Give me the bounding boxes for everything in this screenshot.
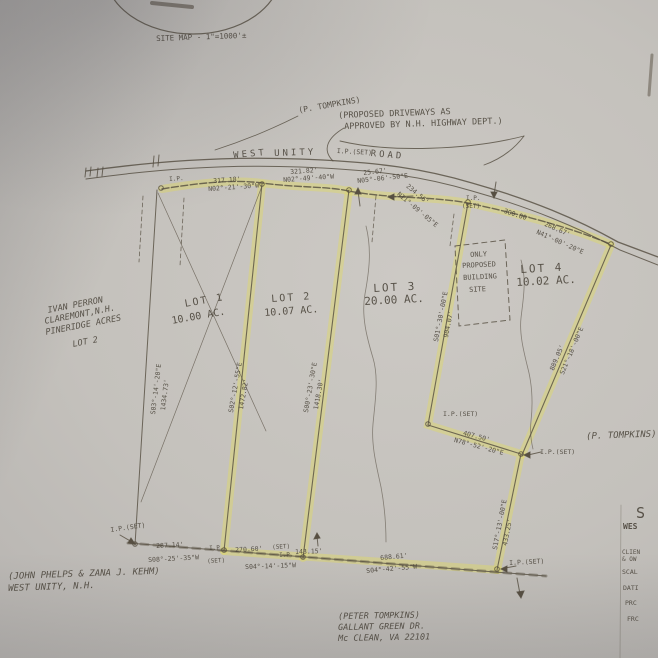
ip-marker-label: I.P. bbox=[279, 552, 294, 559]
ip-marker-label: (SET) bbox=[462, 204, 480, 210]
lot2-area: 10.07 AC. bbox=[264, 305, 319, 319]
ip-marker-label: I.P. bbox=[466, 196, 480, 202]
titleblock-dati: DATI bbox=[623, 585, 639, 592]
bottom-brg-3: S04°-42'-55"W bbox=[366, 564, 417, 575]
ip-set-label: I.P.(SET) bbox=[540, 449, 575, 456]
bottom-dim-2: 270.60' bbox=[235, 546, 263, 554]
titleblock-ow: & OW bbox=[622, 557, 636, 563]
bottom-dim-1: 287.14' bbox=[156, 542, 184, 550]
road-label-unity: UNITY bbox=[274, 149, 316, 159]
abutter-phelps-2: WEST UNITY, N.H. bbox=[8, 582, 95, 594]
road-ip-set: I.P.(SET) bbox=[337, 148, 373, 156]
building-site-line4: SITE bbox=[469, 286, 486, 294]
owner-tompkins-3: Mc CLEAN, VA 22101 bbox=[338, 633, 430, 643]
ip-set-label: I.P.(SET) bbox=[110, 522, 146, 533]
ip-marker-label: (SET) bbox=[272, 544, 290, 551]
frontage-dim-5: 300.00' bbox=[503, 208, 531, 223]
lot3-area: 20.00 AC. bbox=[364, 293, 424, 307]
frontage-brg-2: N02°-49'-40"W bbox=[283, 173, 334, 183]
plat-labels-layer: SITE MAP - 1"=1000'±(P. TOMPKINS)(PROPOS… bbox=[0, 0, 658, 658]
abutter-phelps-1: (JOHN PHELPS & ZANA J. KEHM) bbox=[8, 568, 160, 582]
titleblock-prc: PRC bbox=[625, 600, 637, 607]
bottom-dim-4: 688.61' bbox=[380, 553, 408, 562]
ip-marker-label: I.P. bbox=[209, 545, 224, 552]
abutter-perron-4: LOT 2 bbox=[72, 336, 99, 349]
building-site-line2: PROPOSED bbox=[462, 261, 496, 270]
titleblock-wes: WES bbox=[623, 523, 637, 531]
building-site-line3: BUILDING bbox=[463, 273, 497, 282]
building-site-line1: ONLY bbox=[470, 251, 487, 259]
titleblock-frc: FRC bbox=[627, 616, 639, 623]
lot1-area: 10.00 AC. bbox=[171, 308, 226, 327]
site-map-caption: SITE MAP - 1"=1000'± bbox=[156, 32, 247, 43]
bottom-brg-2: S04°-14'-15"W bbox=[245, 562, 296, 570]
titleblock-s: S bbox=[636, 506, 645, 521]
frontage-brg-1: N02°-21'-30"W bbox=[208, 182, 259, 192]
lot2-title: LOT 2 bbox=[271, 292, 312, 305]
ip-marker-label: I.P. bbox=[169, 176, 184, 183]
bottom-dim-3: 143.15' bbox=[295, 548, 323, 555]
lot4-area: 10.02 AC. bbox=[516, 274, 576, 288]
bottom-brg-1: S08°-25'-35"W bbox=[148, 554, 199, 563]
tompkins-note-right: (P. TOMPKINS) bbox=[586, 431, 657, 442]
owner-tompkins-2: GALLANT GREEN DR. bbox=[338, 622, 425, 632]
owner-tompkins-1: (PETER TOMPKINS) bbox=[338, 612, 420, 622]
ip-set-label: I.P.(SET) bbox=[509, 558, 545, 566]
road-label-road: ROAD bbox=[370, 150, 404, 162]
road-label-west: WEST bbox=[233, 149, 267, 161]
west-line-dim: 1434.73' bbox=[160, 379, 170, 411]
ip-set-label: I.P.(SET) bbox=[443, 411, 478, 418]
titleblock-scal: SCAL bbox=[622, 569, 638, 576]
plat-paper: SITE MAP - 1"=1000'±(P. TOMPKINS)(PROPOS… bbox=[0, 0, 658, 658]
ip-marker-label: (SET) bbox=[207, 558, 225, 565]
